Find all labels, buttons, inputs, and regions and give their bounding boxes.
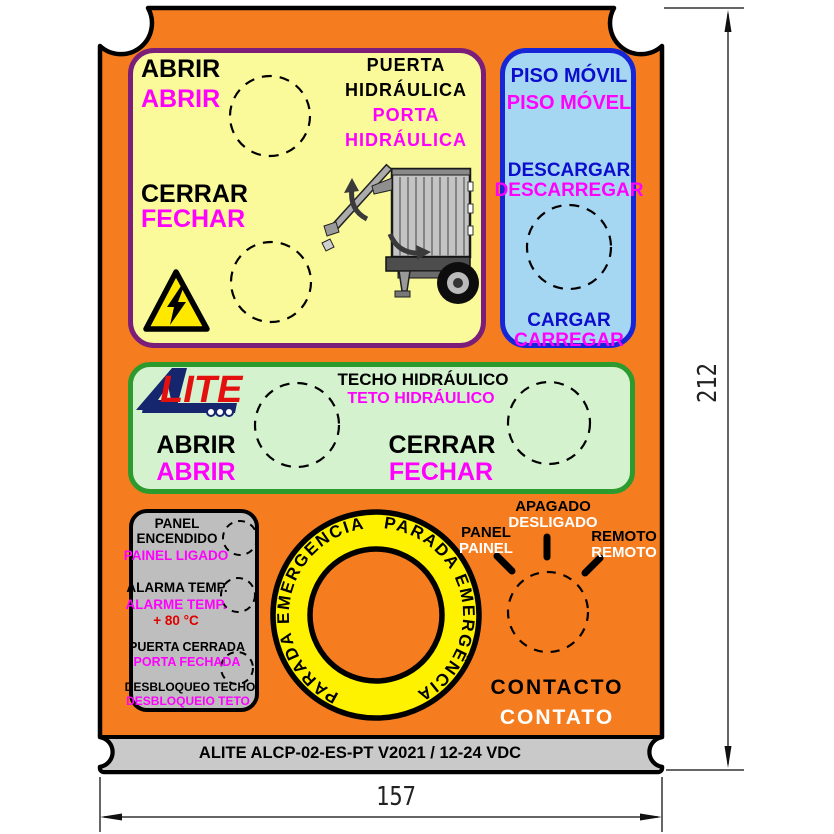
door-title-pt-line1: PORTA: [373, 106, 440, 124]
panel-drawing: PARADA EMERGENCIA PARADA EMERGÊNCIA: [0, 0, 834, 834]
selector-center-label-es: APAGADO: [515, 499, 591, 514]
door-open-label-pt: ABRIR: [141, 87, 220, 112]
dimension-width-value: 157: [376, 784, 416, 810]
roof-title-es: TECHO HIDRÁULICO: [338, 371, 509, 388]
contact-label-es: CONTACTO: [490, 677, 623, 698]
floor-unload-label-es: DESCARGAR: [508, 161, 630, 180]
dimension-height-value: 212: [695, 363, 721, 403]
door-close-label-es: CERRAR: [141, 182, 248, 207]
selector-center-label-pt: DESLIGADO: [508, 515, 597, 530]
temp-alarm-label-pt: ALARME TEMP.: [125, 598, 226, 612]
roof-open-label-pt: ABRIR: [156, 460, 235, 485]
selector-tick-left: [497, 556, 512, 571]
temp-alarm-label-es: ALARMA TEMP.: [126, 581, 227, 595]
door-close-label-pt: FECHAR: [141, 207, 245, 232]
door-title-es-line2: HIDRÁULICA: [345, 81, 467, 99]
selector-right-label-es: REMOTO: [591, 529, 657, 544]
roof-close-label-pt: FECHAR: [389, 460, 493, 485]
selector-left-label-es: PANEL: [461, 525, 511, 540]
estop-ring: PARADA EMERGENCIA PARADA EMERGÊNCIA: [273, 512, 479, 718]
floor-load-label-pt: CARREGAR: [514, 331, 624, 350]
selector-knob-circle: [508, 572, 588, 652]
panel-on-label-pt: PAINEL LIGADO: [124, 549, 229, 563]
estop-button-circle: [336, 575, 416, 655]
selector-left-label-pt: PAINEL: [459, 541, 513, 556]
temp-alarm-value: + 80 °C: [153, 614, 199, 628]
door-title-es-line1: PUERTA: [367, 56, 446, 74]
door-title-pt-line2: HIDRÁULICA: [345, 131, 467, 149]
roof-open-label-es: ABRIR: [156, 433, 235, 458]
svg-text:PARADA EMERGENCIA: PARADA EMERGENCIA: [274, 514, 367, 708]
door-closed-label-es: PUERTA CERRADA: [129, 641, 245, 654]
floor-load-label-es: CARGAR: [527, 311, 610, 330]
panel-on-label-es-line1: PANEL: [155, 517, 200, 531]
floor-unload-label-pt: DESCARREGAR: [495, 181, 644, 200]
panel-on-label-es-line2: ENCENDIDO: [136, 532, 217, 546]
roof-unlock-label-es: DESBLOQUEO TECHO: [125, 681, 256, 693]
footer-model-text: ALITE ALCP-02-ES-PT V2021 / 12-24 VDC: [199, 745, 521, 762]
contact-label-pt: CONTATO: [500, 707, 614, 728]
selector-right-label-pt: REMOTO: [591, 545, 657, 560]
roof-close-label-es: CERRAR: [389, 433, 496, 458]
door-open-label-es: ABRIR: [141, 57, 220, 82]
door-closed-label-pt: PORTA FECHADA: [134, 656, 241, 669]
roof-unlock-label-pt: DESBLOQUEIO TETO: [126, 695, 250, 707]
estop-arc-text-es: PARADA EMERGENCIA: [274, 514, 367, 708]
floor-title-es: PISO MÓVIL: [511, 66, 628, 86]
roof-title-pt: TETO HIDRÁULICO: [347, 391, 494, 407]
floor-title-pt: PISO MÓVEL: [507, 93, 631, 113]
